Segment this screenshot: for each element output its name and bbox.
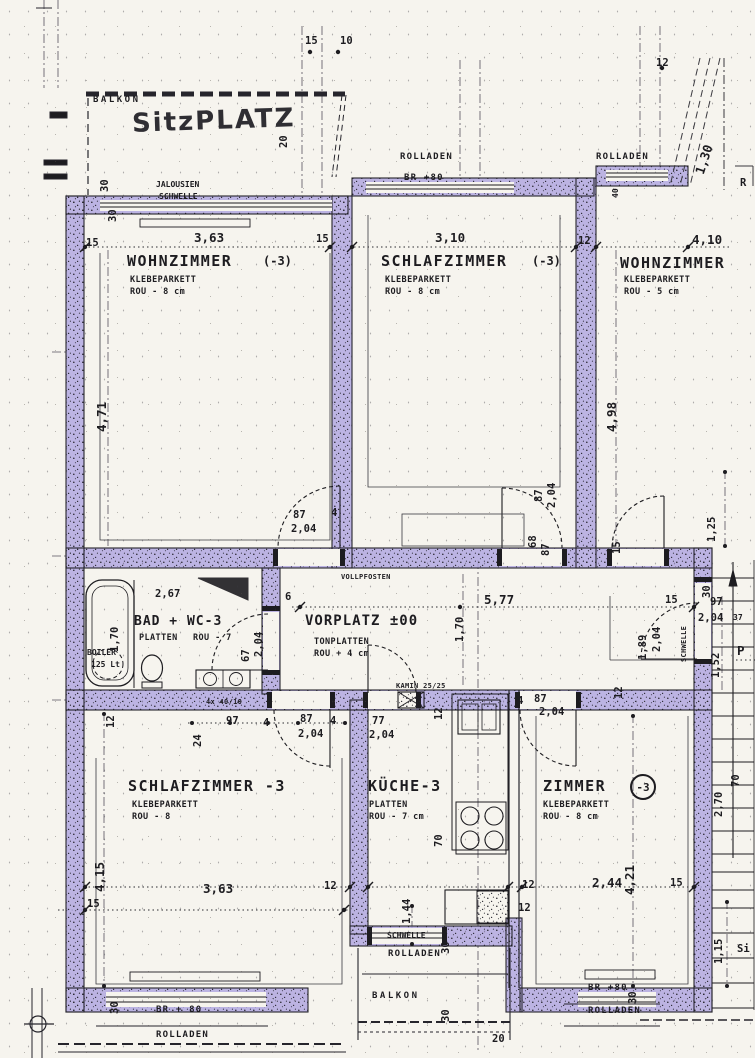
floor-material: TONPLATTEN [314,638,369,647]
dimension-label: 30 [441,1009,452,1022]
dimension-label: 15 [86,238,99,249]
balcony-bottom-label: BALKON [372,992,420,1001]
dimension-label: 12 [522,880,535,891]
room-label-bad-wc: BAD + WC-3 [134,615,222,628]
door-dimension: 87 [293,510,306,521]
sitzplatz-label: SitzPLATZ [132,105,296,137]
dimension-label: 4 [263,718,269,729]
floor-material: KLEBEPARKETT [624,276,690,285]
dimension-label: 4,98 [606,402,619,432]
annotation: 4x 40/10 [206,699,242,706]
door-dimension: 97 [710,597,723,608]
room-label-vorplatz: VORPLATZ ±00 [305,614,418,628]
dimension-label: 12 [324,881,337,892]
dimension-label: 15 [612,541,623,554]
dimension-label: 2,67 [155,589,180,600]
door-dimension: 2,04 [369,730,394,741]
window-sill-label: BR + 80 [156,1006,202,1015]
dimension-label: 3,63 [203,883,233,896]
boiler-label: BOILER [87,649,116,657]
floor-material: ROU - 8 cm [385,288,440,297]
room-label-schlafzimmer-bottom: SCHLAFZIMMER -3 [128,779,286,794]
room-label-zimmer: ZIMMER [543,779,606,794]
floor-material: ROU - 8 cm [543,813,598,822]
door-dimension: 2,04 [547,483,558,508]
dimension-label: 4 [330,716,336,727]
dimension-label: 30 [628,991,639,1004]
floor-material: ROU - 8 [132,813,171,822]
dimension-label: 68 [528,535,539,548]
dimension-label: 20 [279,135,290,148]
chimney [398,692,424,708]
dimension-label: 5,77 [484,594,514,607]
door-dimension: 87 [300,714,313,725]
schwelle-label: SCHWELLE [681,626,688,662]
floor-material: KLEBEPARKETT [543,801,609,810]
room-inner-outlines [96,215,694,984]
dimension-label: 4,10 [692,234,722,247]
dimension-label: 2,44 [592,877,622,890]
room-label-wohnzimmer-left: WOHNZIMMER [127,254,232,269]
window-sill-label: BR +80 [588,984,628,993]
toilet [142,655,163,681]
schwelle-label: SCHWELLE [159,193,198,201]
jalousien-label: JALOUSIEN [156,181,199,189]
dimension-label: 6 [285,592,291,603]
dimension-label: 30 [100,179,111,192]
vollpfosten-label: VOLLPFOSTEN [341,574,391,581]
rolladen-label: ROLLADEN [400,153,453,162]
floor-material: ROU - 5 cm [624,288,679,297]
door-dimension: 2,04 [539,707,564,718]
door-dimension: 2,04 [254,632,265,657]
dimension-label: 4 [517,696,523,707]
dimension-label: 70 [434,834,445,847]
dimension-label: 3,10 [435,232,465,245]
dimension-label: 20 [492,1034,505,1045]
stair-dimension: 70 [731,774,742,787]
door-dimension: 2,04 [698,613,723,624]
schwelle-label: SCHWELLE [387,932,426,940]
dimension-lines [58,247,755,910]
door-dimension: 77 [372,716,385,727]
room-label-wohnzimmer-right: WOHNZIMMER [620,256,725,271]
door-dimension: 87 [534,694,547,705]
dimension-label: 12 [106,715,117,728]
dimension-label: 4,71 [96,402,109,432]
floor-material: ROU - 8 cm [130,288,185,297]
dimension-label: 15 [665,595,678,606]
dimension-label: 1,15 [714,939,725,964]
dimension-label: 12 [434,707,445,720]
dimension-label: 12 [518,903,531,914]
dimension-label: 97 [226,716,239,727]
dimension-label: 1,52 [711,653,722,678]
dimension-label: 4,15 [94,862,107,892]
floor-material: KLEBEPARKETT [130,276,196,285]
dimension-label: 40 [612,188,620,198]
dimension-label: 15 [316,234,329,245]
door-dimension: 2,04 [652,627,663,652]
dimension-label: 12 [614,686,625,699]
floor-material: PLATTEN [139,634,178,643]
rolladen-label: ROLLADEN [156,1031,209,1040]
window-sill-label: BR +80 [404,174,444,183]
dimension-label: 37 [733,614,743,622]
room-tag: (-3) [532,255,561,267]
room-label-schlafzimmer-top: SCHLAFZIMMER [381,254,507,269]
edge-fragment: Si [737,944,750,955]
shower-corner [198,578,248,600]
floor-material: KLEBEPARKETT [385,276,451,285]
door-dimension: 67 [241,649,252,662]
room-tag-circled: -3 [630,774,656,800]
dimension-label: 3,63 [194,232,224,245]
dimension-label: 15 [305,36,318,47]
room-tag: (-3) [263,255,292,267]
kamin-label: KAMIN 25/25 [396,683,446,690]
dimension-label: 12 [656,58,669,69]
rolladen-label: ROLLADEN [596,153,649,162]
door-dimension: 87 [534,489,545,502]
door-dimension: 2,04 [291,524,316,535]
dimension-label: 1,25 [707,517,718,542]
floor-material: ROU + 4 cm [314,650,369,659]
rolladen-label: ROLLADEN [588,1007,641,1016]
dimension-label: 4,21 [624,865,637,895]
floorplan-page: { "colors":{"wall_highlight":"#b2a8e0","… [0,0,755,1058]
dimension-label: 24 [193,734,204,747]
door-dimension: 1,89 [638,635,649,660]
floor-material: ROU - 7 [193,634,232,643]
rolladen-label: ROLLADEN [388,950,441,959]
balcony-top-label: BALKON [93,96,141,105]
stair-dimension: 2,70 [714,792,725,817]
dimension-label: 30 [441,941,452,954]
dimension-label: 15 [87,899,100,910]
dimension-label: 30 [108,209,119,222]
room-label-kueche: KÜCHE-3 [368,779,442,794]
dimension-label: 87 [541,543,552,556]
dimension-label: 1,44 [402,899,413,924]
dimension-label: 15 [670,878,683,889]
edge-letter: P [737,645,745,658]
dimension-label: 1,70 [455,617,466,642]
floor-material: ROU - 7 cm [369,813,424,822]
boiler-capacity: 125 Lt [91,661,120,669]
dimension-label: 30 [110,1001,121,1014]
dimension-label: 4 [331,508,337,519]
dimension-label: 12 [578,236,591,247]
edge-letter: R [740,178,746,189]
dimension-label: 10 [340,36,353,47]
floor-material: KLEBEPARKETT [132,801,198,810]
door-dimension: 2,04 [298,729,323,740]
kitchen-fixtures [398,692,509,924]
floor-material: PLATTEN [369,801,408,810]
